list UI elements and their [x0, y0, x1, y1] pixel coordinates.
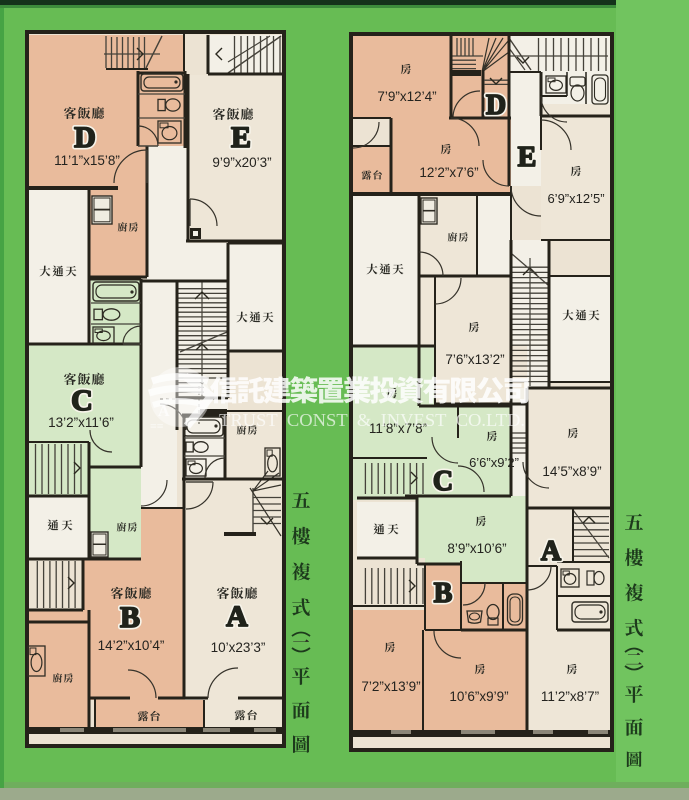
svg-text:11’1”x15’8”: 11’1”x15’8”: [54, 153, 120, 168]
svg-text:7’6”x13’2”: 7’6”x13’2”: [445, 352, 504, 367]
svg-text:10’x23’3”: 10’x23’3”: [211, 640, 266, 655]
svg-text:7’2”x13’9”: 7’2”x13’9”: [361, 679, 420, 694]
svg-text:14’2”x10’4”: 14’2”x10’4”: [98, 638, 165, 653]
svg-text:6’9”x12’5”: 6’9”x12’5”: [547, 191, 604, 206]
svg-text:B: B: [120, 601, 140, 634]
svg-text:A: A: [226, 600, 248, 633]
svg-text:C: C: [433, 466, 453, 497]
svg-text:8’9”x10’6”: 8’9”x10’6”: [447, 541, 506, 556]
svg-text:A: A: [158, 403, 170, 420]
svg-text:7’9”x12’4”: 7’9”x12’4”: [377, 89, 436, 104]
svg-text:A: A: [541, 536, 562, 567]
svg-text:≡≡: ≡≡: [150, 419, 164, 433]
svg-text:6’6”x9’2”: 6’6”x9’2”: [469, 455, 519, 470]
svg-text:E: E: [231, 121, 251, 154]
svg-text:B: B: [434, 578, 453, 609]
svg-text:9’9”x20’3”: 9’9”x20’3”: [212, 155, 271, 170]
svg-text:11’2”x8’7”: 11’2”x8’7”: [541, 689, 599, 704]
svg-text:TRUST CONST & INVEST CO.LT: TRUST CONST & INVEST CO.LTD.: [219, 410, 525, 430]
svg-text:E: E: [518, 142, 537, 173]
svg-text:C: C: [71, 384, 93, 417]
svg-text:12’2”x7’6”: 12’2”x7’6”: [419, 165, 478, 180]
svg-text:D: D: [74, 121, 96, 154]
svg-text:10’6”x9’9”: 10’6”x9’9”: [449, 689, 508, 704]
svg-text:D: D: [486, 90, 506, 121]
svg-text:13’2”x11’6”: 13’2”x11’6”: [48, 415, 114, 430]
svg-text:14’5”x8’9”: 14’5”x8’9”: [542, 464, 601, 479]
